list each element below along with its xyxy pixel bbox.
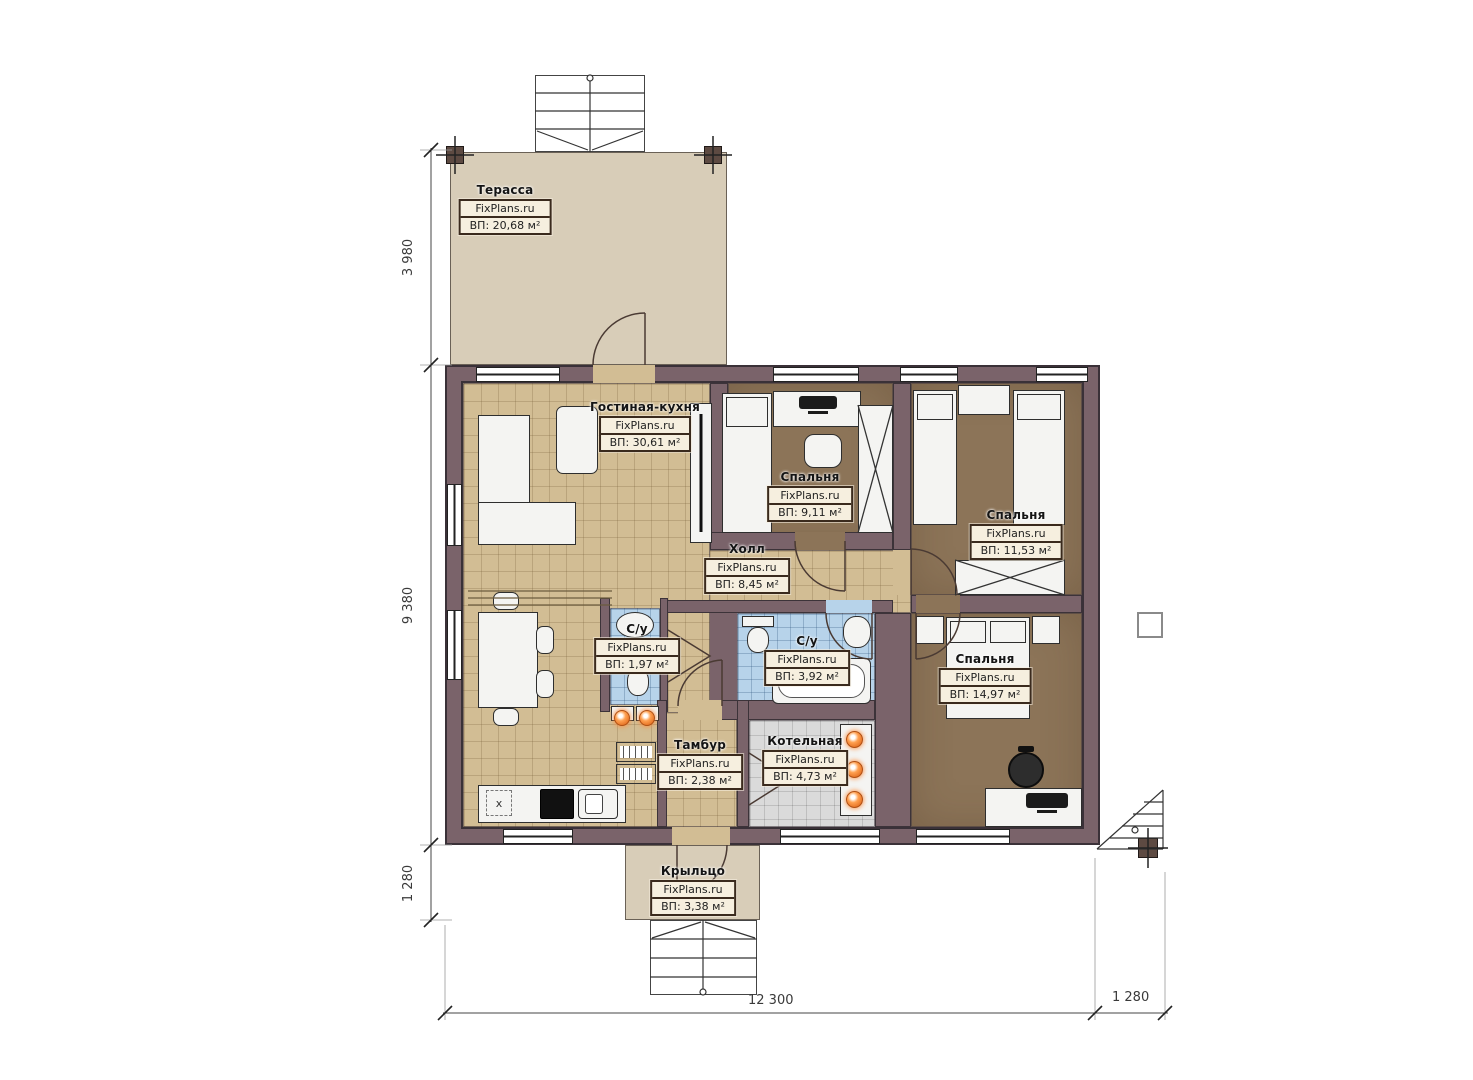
room-area: ВП: 4,73 м² xyxy=(764,769,846,784)
room-label-porch: Крыльцо FixPlans.ru ВП: 3,38 м² xyxy=(650,864,736,916)
watermark: FixPlans.ru xyxy=(941,670,1030,687)
watermark: FixPlans.ru xyxy=(596,640,678,657)
room-label-living: Гостиная-кухня FixPlans.ru ВП: 30,61 м² xyxy=(590,400,700,452)
room-area: ВП: 1,97 м² xyxy=(596,657,678,672)
room-label-bedroom1: Спальня FixPlans.ru ВП: 9,11 м² xyxy=(767,470,853,522)
room-name: Тамбур xyxy=(657,738,743,752)
watermark: FixPlans.ru xyxy=(601,418,690,435)
room-area: ВП: 9,11 м² xyxy=(769,505,851,520)
dim-left-top: 3 980 xyxy=(401,239,416,276)
porch-stairs-lines xyxy=(650,920,757,995)
room-area: ВП: 2,38 м² xyxy=(659,773,741,788)
watermark: FixPlans.ru xyxy=(769,488,851,505)
room-label-bedroom2: Спальня FixPlans.ru ВП: 11,53 м² xyxy=(970,508,1063,560)
room-area: ВП: 14,97 м² xyxy=(941,687,1030,702)
dim-left-middle: 9 380 xyxy=(401,587,416,624)
side-stairs-lines xyxy=(1097,790,1163,849)
room-area: ВП: 8,45 м² xyxy=(706,577,788,592)
room-name: С/у xyxy=(594,622,680,636)
plan-line-overlay xyxy=(0,0,1473,1080)
room-area: ВП: 3,92 м² xyxy=(766,669,848,684)
floor-plan-canvas: x xyxy=(0,0,1473,1080)
dim-left-bottom: 1 280 xyxy=(401,865,416,902)
watermark: FixPlans.ru xyxy=(652,882,734,899)
room-label-hall: Холл FixPlans.ru ВП: 8,45 м² xyxy=(704,542,790,594)
watermark: FixPlans.ru xyxy=(706,560,788,577)
room-name: Терасса xyxy=(459,183,552,197)
room-label-bedroom3: Спальня FixPlans.ru ВП: 14,97 м² xyxy=(939,652,1032,704)
terrace-stairs-lines xyxy=(535,75,645,152)
room-area: ВП: 20,68 м² xyxy=(461,218,550,233)
room-label-terrace: Терасса FixPlans.ru ВП: 20,68 м² xyxy=(459,183,552,235)
watermark: FixPlans.ru xyxy=(972,526,1061,543)
dim-bottom-right: 1 280 xyxy=(1112,990,1149,1005)
room-label-wc1: С/у FixPlans.ru ВП: 1,97 м² xyxy=(594,622,680,674)
watermark: FixPlans.ru xyxy=(764,752,846,769)
dimension-extension-lines xyxy=(420,150,1165,1020)
watermark: FixPlans.ru xyxy=(766,652,848,669)
room-area: ВП: 3,38 м² xyxy=(652,899,734,914)
wardrobe-x-lines xyxy=(858,405,1065,595)
dimension-lines xyxy=(431,148,1168,1013)
room-label-tambour: Тамбур FixPlans.ru ВП: 2,38 м² xyxy=(657,738,743,790)
bar-counter-lines xyxy=(468,591,612,605)
room-name: Котельная xyxy=(762,734,848,748)
room-name: Спальня xyxy=(970,508,1063,522)
watermark: FixPlans.ru xyxy=(659,756,741,773)
room-name: Спальня xyxy=(767,470,853,484)
dim-bottom-main: 12 300 xyxy=(748,993,794,1008)
room-name: Спальня xyxy=(939,652,1032,666)
room-name: Крыльцо xyxy=(650,864,736,878)
dimension-ticks xyxy=(424,143,1172,1020)
room-name: Холл xyxy=(704,542,790,556)
room-label-boiler: Котельная FixPlans.ru ВП: 4,73 м² xyxy=(762,734,848,786)
room-name: С/у xyxy=(764,634,850,648)
watermark: FixPlans.ru xyxy=(461,201,550,218)
room-label-wc2: С/у FixPlans.ru ВП: 3,92 м² xyxy=(764,634,850,686)
room-name: Гостиная-кухня xyxy=(590,400,700,414)
room-area: ВП: 30,61 м² xyxy=(601,435,690,450)
room-area: ВП: 11,53 м² xyxy=(972,543,1061,558)
